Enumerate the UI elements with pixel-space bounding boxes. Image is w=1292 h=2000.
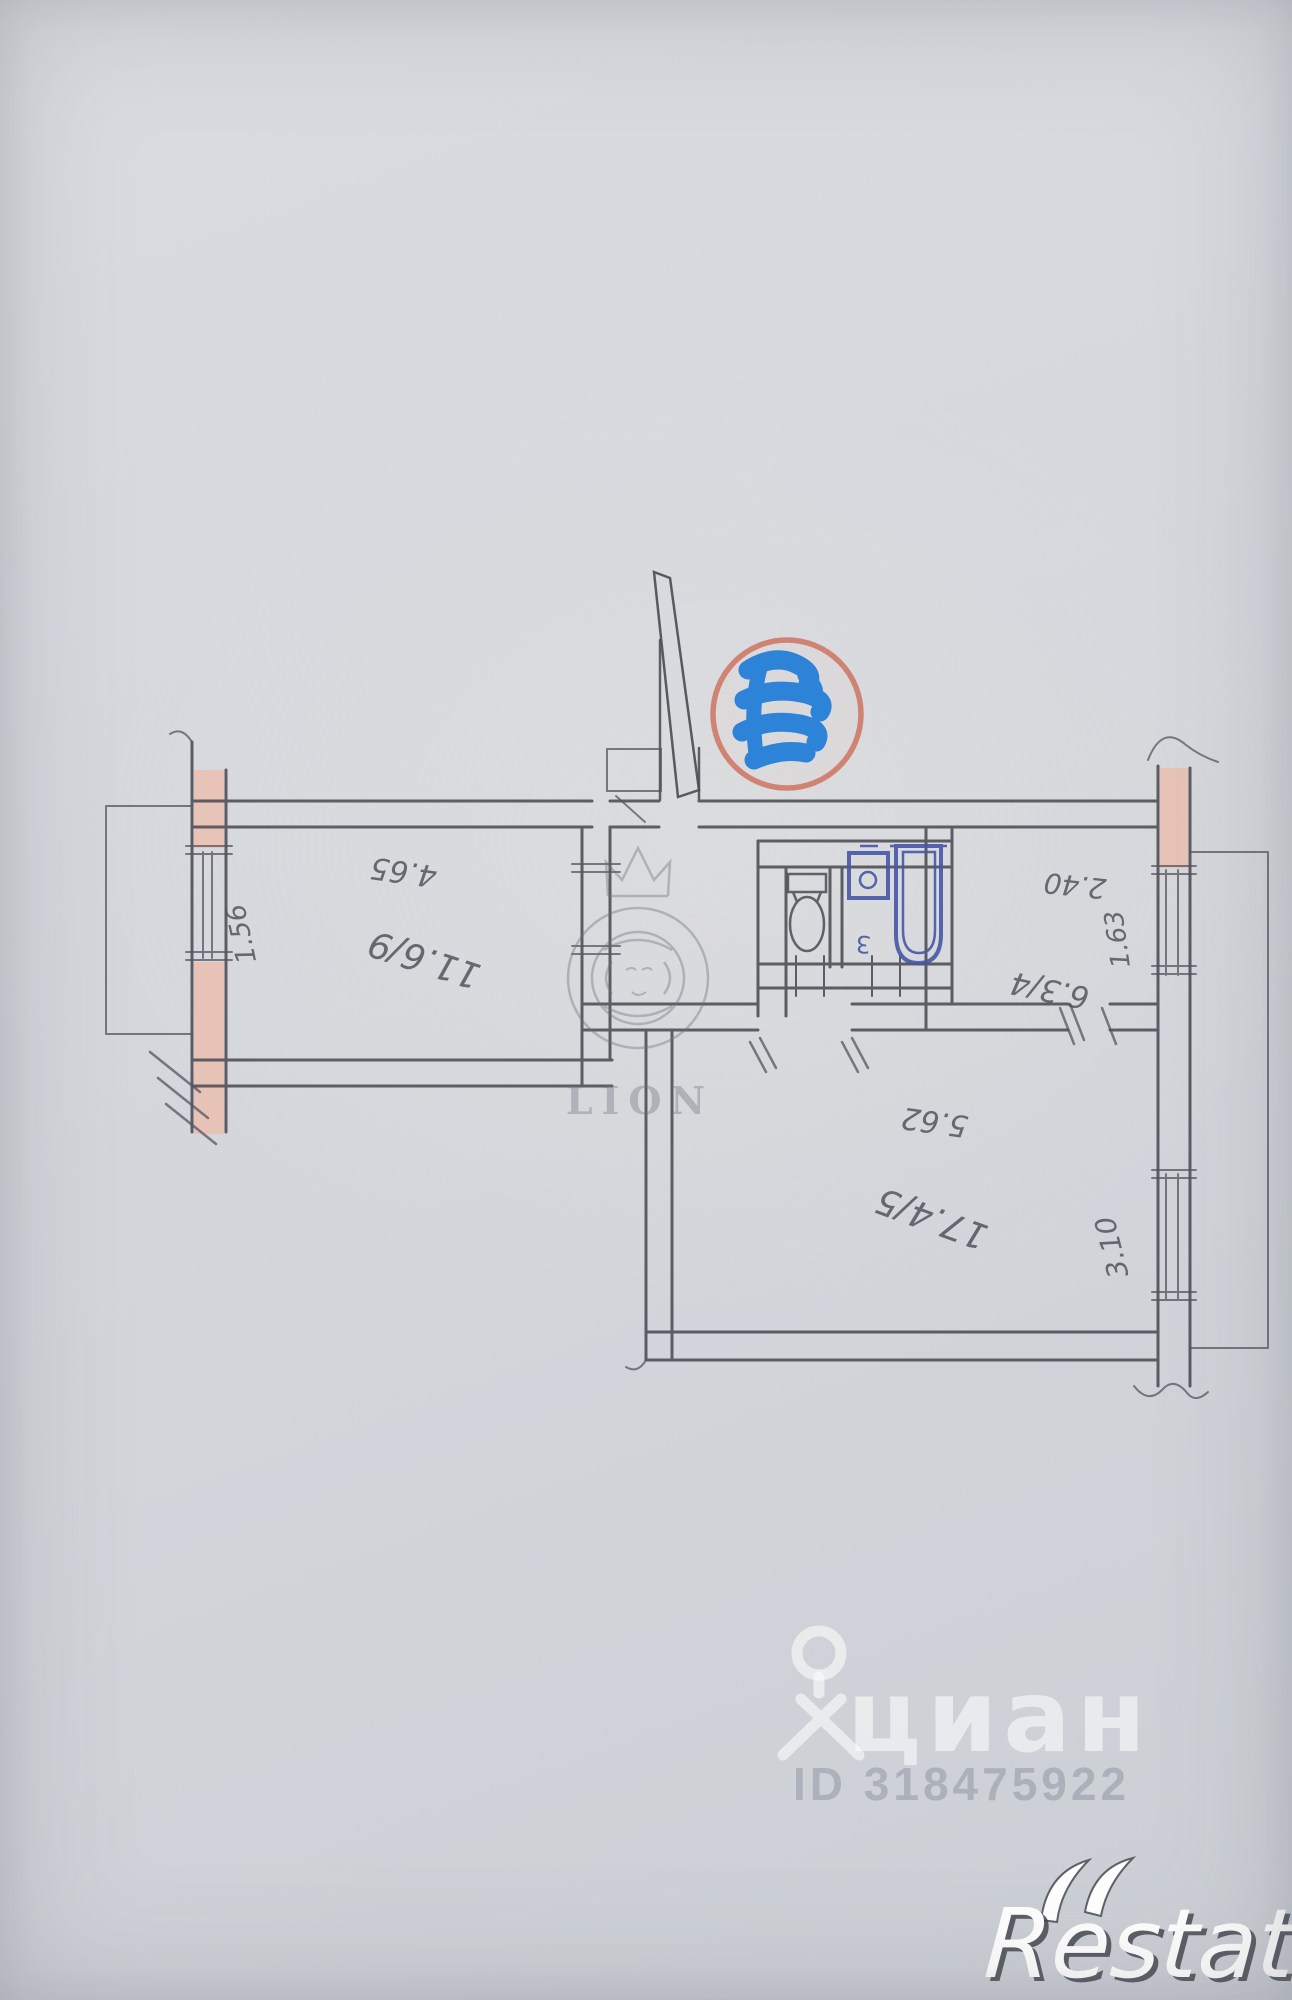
lion-watermark-text: LION	[545, 1078, 735, 1123]
room-5-label: 17.4/5	[871, 1179, 993, 1257]
wc-number-label: 3	[855, 929, 872, 958]
dimension-3-10: 3.10	[1088, 1213, 1135, 1281]
restate-watermark-text: Restate	[982, 1896, 1292, 1992]
cian-watermark-text: циан	[847, 1667, 1152, 1767]
dimension-5-62: 5.62	[899, 1099, 970, 1143]
dimension-1-63: 1.63	[1099, 908, 1137, 970]
dimension-4-65: 4.65	[368, 849, 439, 893]
cian-id-text: ID 318475922	[793, 1757, 1130, 1811]
sink	[849, 853, 888, 898]
dimension-2-40: 2.40	[1042, 866, 1107, 905]
room-4-label: 6.3/4	[1007, 964, 1092, 1016]
vestibule	[607, 749, 661, 822]
restate-watermark: Restate	[975, 1868, 1292, 2000]
balcony-left	[106, 806, 192, 1034]
toilet-fixture	[788, 874, 826, 951]
stamp	[713, 640, 861, 788]
lion-watermark: LION	[545, 828, 735, 1138]
cian-watermark: циан ID 318475922	[735, 1615, 1195, 1815]
room-9-label: 11.6/9	[363, 922, 485, 997]
loggia-right	[1190, 852, 1268, 1348]
floorplan-photo: { "plan": { "rooms": [ {"id": "room-9", …	[0, 0, 1292, 2000]
